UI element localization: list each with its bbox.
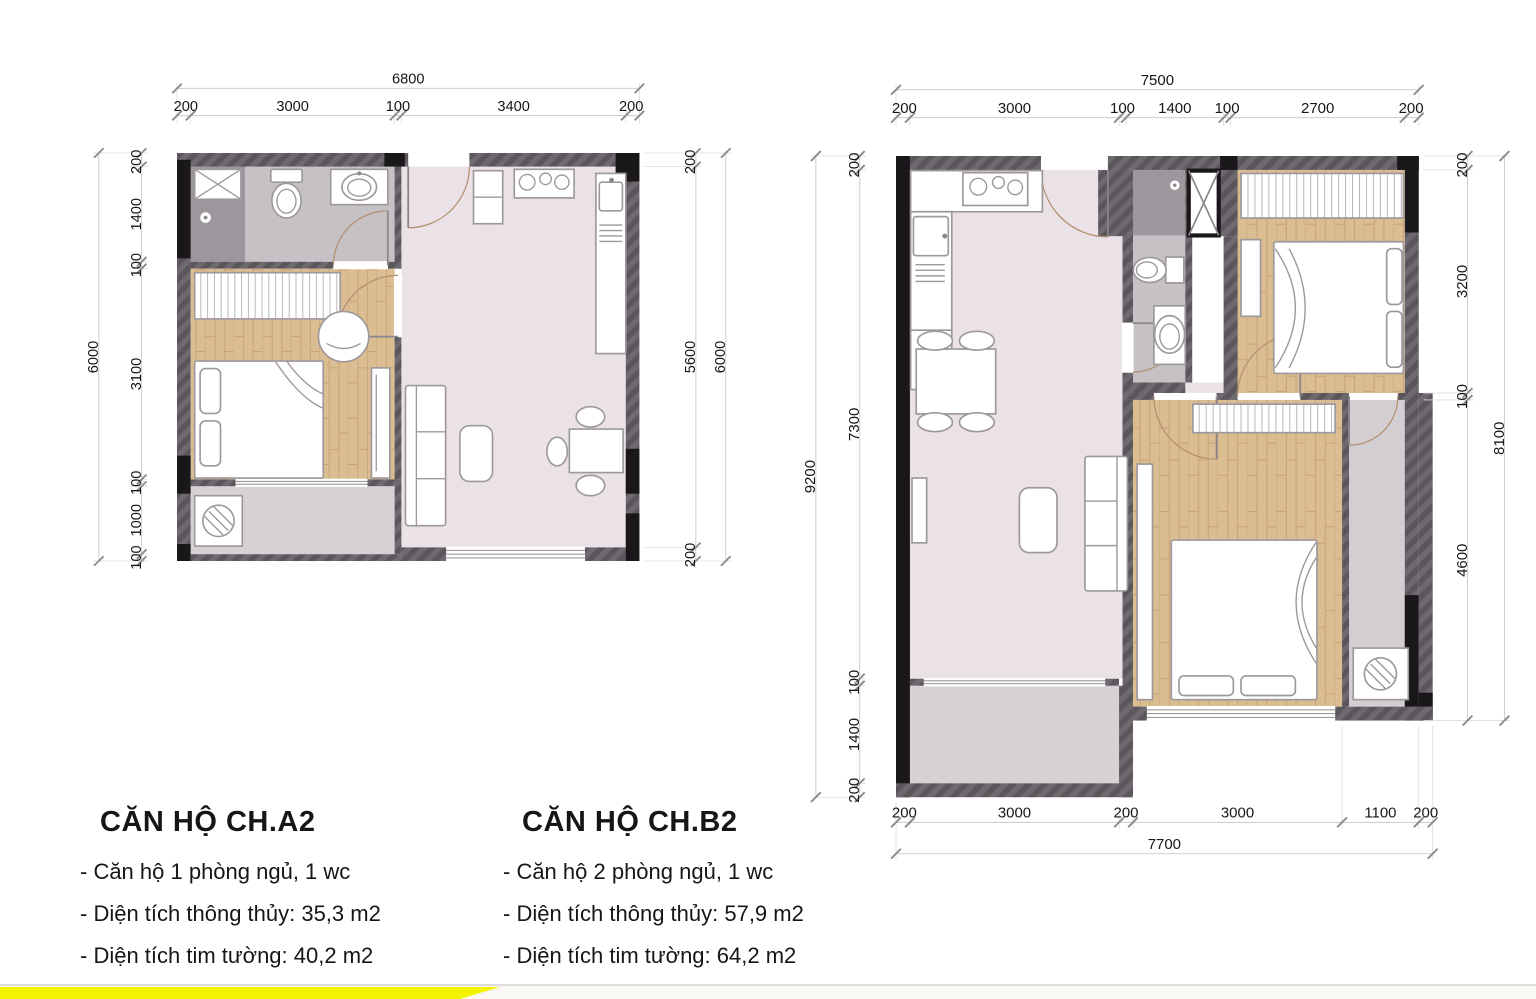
dim-b2-left-seg-0: 200 [846, 153, 863, 178]
dim-b2-left-seg-4: 200 [846, 778, 863, 803]
dim-b2-left-seg-1: 7300 [846, 408, 863, 441]
dim-b2-bottom-seg-0: 200 [892, 804, 917, 821]
dim-b2-right-seg-1: 3200 [1454, 265, 1471, 298]
dim-b2-right-total: 8100 [1491, 422, 1508, 455]
plan-a2-spec-net-area: - Diện tích thông thủy: 35,3 m2 [80, 893, 381, 935]
dim-a2-left-seg-6: 100 [129, 545, 145, 569]
plan-b2-spec-net-area: - Diện tích thông thủy: 57,9 m2 [503, 893, 804, 935]
dim-a2-left-seg-4: 100 [129, 471, 145, 495]
dim-b2-right-seg-0: 200 [1454, 153, 1471, 178]
dim-b2-bottom-total: 7700 [1148, 836, 1181, 853]
dim-a2-left-seg-2: 100 [129, 253, 145, 277]
plan-a2-title: CĂN HỘ CH.A2 [100, 806, 381, 839]
dim-b2-top-seg-0: 200 [892, 100, 917, 117]
dim-b2-bottom-seg-3: 3000 [1221, 804, 1254, 821]
dim-b2-bottom-seg-5: 200 [1413, 804, 1438, 821]
dim-a2-top-seg-0: 200 [174, 99, 198, 115]
plan-b2-spec-rooms: - Căn hộ 2 phòng ngủ, 1 wc [503, 851, 804, 893]
dim-b2-bottom-seg-1: 3000 [998, 804, 1031, 821]
dim-b2-top-seg-1: 3000 [998, 100, 1031, 117]
dim-a2-top-seg-4: 200 [619, 99, 643, 115]
dim-b2-left-seg-3: 1400 [846, 718, 863, 751]
dim-a2-right-total: 6000 [713, 341, 729, 374]
plan-b2-legend: CĂN HỘ CH.B2 - Căn hộ 2 phòng ngủ, 1 wc … [522, 806, 804, 977]
plan-b2-spec-gross-area: - Diện tích tim tường: 64,2 m2 [503, 935, 804, 977]
footer-accent-bar [0, 987, 500, 999]
dim-b2-top-seg-3: 1400 [1158, 100, 1191, 117]
dim-a2-top-seg-2: 100 [386, 99, 410, 115]
plan-a2: 6800 200 3000 100 3400 200 6000 200 1400… [86, 72, 731, 570]
dim-b2-right-seg-2: 100 [1454, 384, 1471, 409]
dim-b2-left-total: 9200 [802, 460, 819, 493]
dim-b2-right-seg-3: 4600 [1454, 544, 1471, 577]
dim-a2-top-total: 6800 [392, 72, 425, 88]
dim-a2-left-seg-5: 1000 [129, 504, 145, 537]
dim-a2-right-seg-0: 200 [683, 150, 699, 174]
dim-a2-left-seg-0: 200 [129, 150, 145, 174]
plan-b2: 7500 200 3000 100 1400 100 2700 200 9200… [802, 72, 1510, 859]
dim-b2-top-seg-6: 200 [1399, 100, 1424, 117]
plan-a2-spec-rooms: - Căn hộ 1 phòng ngủ, 1 wc [80, 851, 381, 893]
dim-a2-top-seg-1: 3000 [276, 99, 309, 115]
dim-a2-right-seg-2: 200 [683, 543, 699, 567]
dim-a2-top-seg-3: 3400 [497, 99, 530, 115]
dim-b2-top-seg-2: 100 [1110, 100, 1135, 117]
floorplan-sheet: 6800 200 3000 100 3400 200 6000 200 1400… [0, 0, 1536, 999]
dim-b2-top-total: 7500 [1141, 72, 1174, 89]
dim-b2-top-seg-5: 2700 [1301, 100, 1334, 117]
plan-b2-title: CĂN HỘ CH.B2 [522, 806, 804, 839]
dim-b2-top-seg-4: 100 [1215, 100, 1240, 117]
plan-a2-spec-gross-area: - Diện tích tim tường: 40,2 m2 [80, 935, 381, 977]
dim-a2-left-seg-1: 1400 [129, 198, 145, 231]
dim-a2-left-total: 6000 [86, 341, 102, 374]
plan-b2-shaft [1189, 171, 1219, 236]
plan-a2-legend: CĂN HỘ CH.A2 - Căn hộ 1 phòng ngủ, 1 wc … [100, 806, 381, 977]
dim-a2-left-seg-3: 3100 [129, 358, 145, 391]
dim-b2-left-seg-2: 100 [846, 670, 863, 695]
dim-b2-bottom-seg-4: 1100 [1364, 804, 1396, 821]
dim-a2-right-seg-1: 5600 [683, 341, 699, 374]
dim-b2-bottom-seg-2: 200 [1114, 804, 1139, 821]
